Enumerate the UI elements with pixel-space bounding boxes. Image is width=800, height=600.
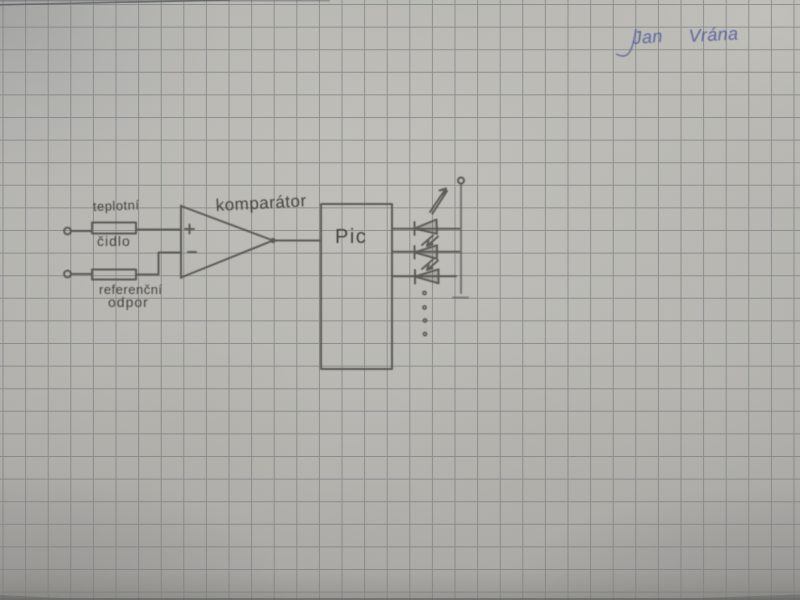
svg-text:teplotní: teplotní bbox=[93, 197, 140, 214]
svg-text:čidlo: čidlo bbox=[97, 233, 131, 249]
svg-text:Pic: Pic bbox=[335, 226, 367, 248]
svg-text:Vrána: Vrána bbox=[688, 23, 739, 46]
svg-text:odpor: odpor bbox=[108, 294, 149, 310]
